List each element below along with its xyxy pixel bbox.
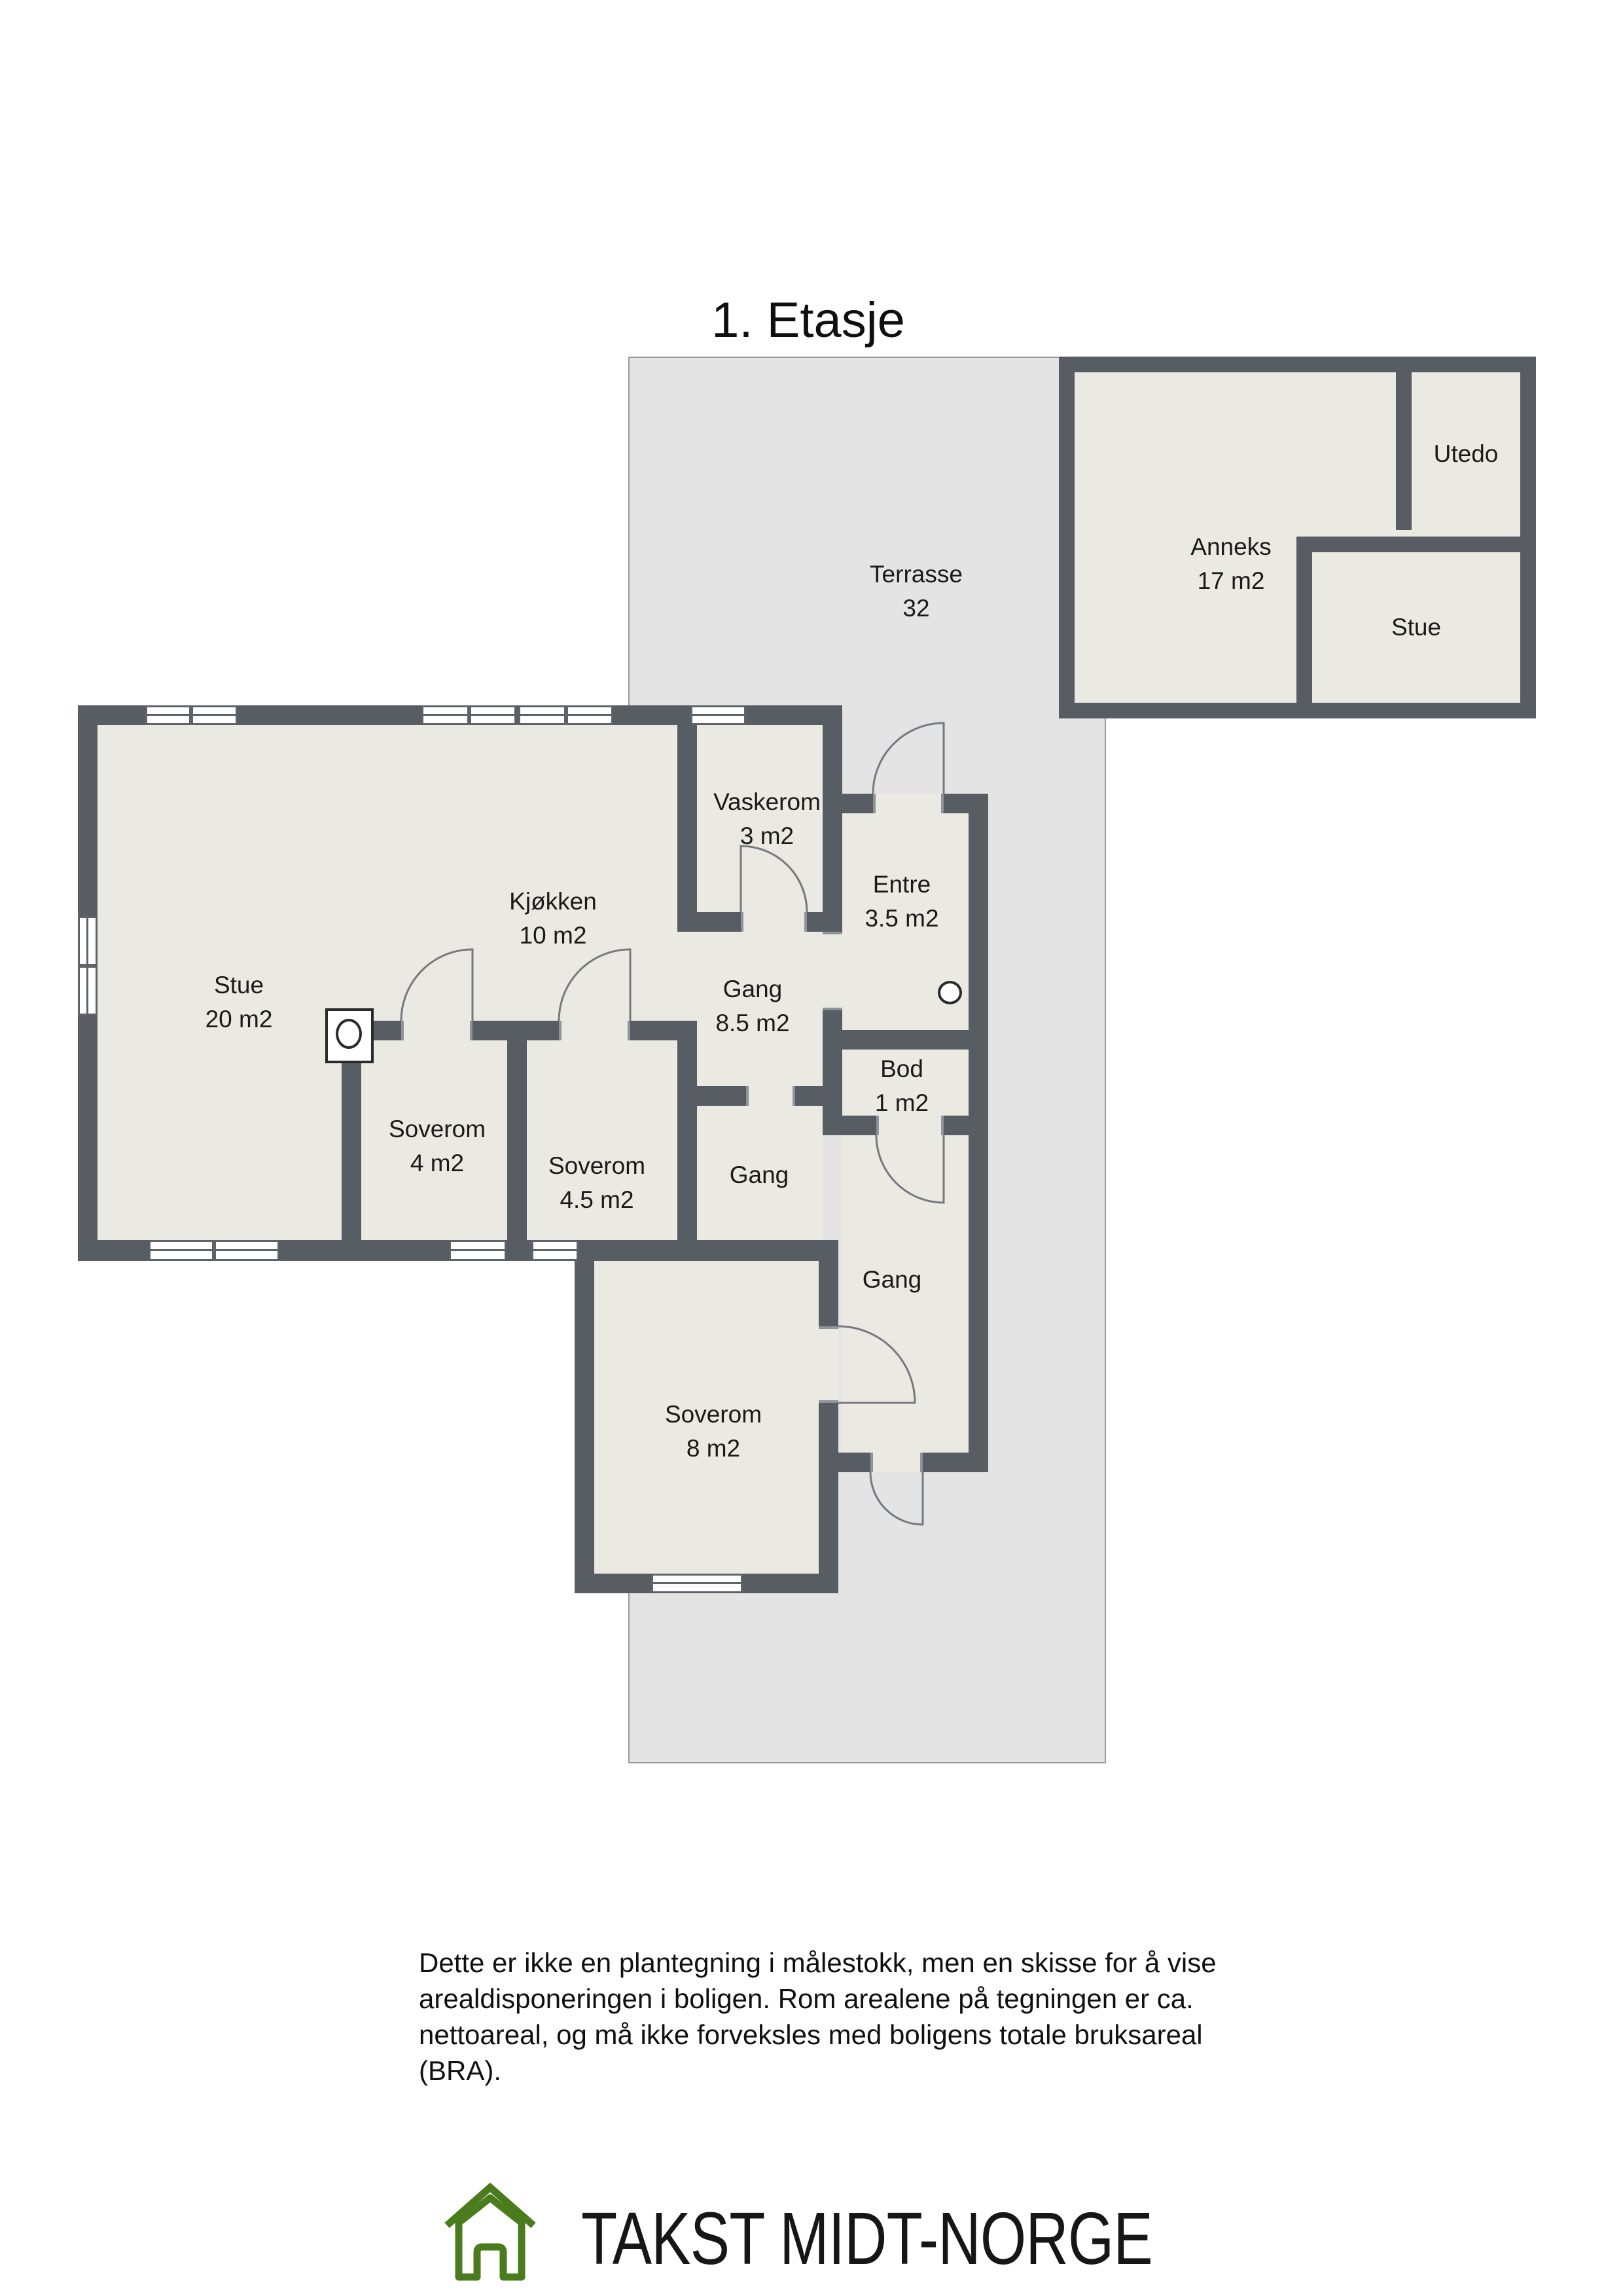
room-area: 4 m2 bbox=[389, 1146, 486, 1180]
room-area: 3 m2 bbox=[713, 819, 821, 853]
disclaimer-text: Dette er ikke en plantegning i målestokk… bbox=[419, 1945, 1217, 2089]
label-soverom8: Soverom 8 m2 bbox=[665, 1398, 762, 1466]
window-top-4 bbox=[690, 705, 746, 725]
label-gang-wing: Gang bbox=[863, 1263, 922, 1297]
label-terrasse: Terrasse 32 bbox=[870, 557, 963, 626]
room-name: Bod bbox=[875, 1052, 929, 1086]
room-name: Utedo bbox=[1434, 437, 1499, 471]
room-name: Anneks bbox=[1190, 530, 1271, 564]
room-area: 20 m2 bbox=[205, 1002, 273, 1036]
room-name: Gang bbox=[730, 1158, 789, 1192]
room-name: Vaskerom bbox=[713, 785, 821, 819]
label-soverom4: Soverom 4 m2 bbox=[389, 1112, 486, 1180]
room-area: 8 m2 bbox=[665, 1432, 762, 1466]
label-gang-mid: Gang bbox=[730, 1158, 789, 1192]
wall-soverom4-left bbox=[342, 1063, 361, 1240]
anneks-wall-utedo-divider bbox=[1396, 357, 1412, 530]
wall-soverom8-right bbox=[819, 1240, 838, 1593]
logo-text: TAKST MIDT-NORGE bbox=[581, 2199, 1152, 2278]
window-top-3a bbox=[518, 705, 566, 725]
wall-entre-bod-divider bbox=[842, 1030, 969, 1050]
opening-soverom8-door bbox=[819, 1326, 838, 1403]
window-top-2b bbox=[469, 705, 516, 725]
room-name: Kjøkken bbox=[509, 885, 597, 919]
window-top-1b bbox=[191, 705, 238, 725]
room-name: Soverom bbox=[548, 1149, 645, 1183]
disclaimer-line: (BRA). bbox=[419, 2053, 1217, 2089]
room-name: Terrasse bbox=[870, 557, 963, 592]
wall-soverom8-left bbox=[575, 1240, 594, 1593]
room-name: Stue bbox=[1391, 610, 1441, 645]
label-entre: Entre 3.5 m2 bbox=[865, 868, 938, 936]
label-vaskerom: Vaskerom 3 m2 bbox=[713, 785, 821, 853]
anneks-wall-left bbox=[1059, 357, 1075, 718]
window-bottom-1b bbox=[214, 1240, 279, 1261]
room-name: Gang bbox=[715, 972, 789, 1006]
anneks-wall-stue-left bbox=[1296, 537, 1312, 718]
label-utedo: Utedo bbox=[1434, 437, 1499, 471]
label-soverom45: Soverom 4.5 m2 bbox=[548, 1149, 645, 1217]
wall-main-right-upper bbox=[823, 705, 842, 932]
window-left-1a bbox=[78, 916, 98, 966]
label-bod: Bod 1 m2 bbox=[875, 1052, 929, 1120]
anneks-wall-stue-top bbox=[1296, 537, 1536, 552]
room-name: Soverom bbox=[389, 1112, 486, 1146]
window-bottom-3 bbox=[531, 1240, 579, 1261]
label-anneks: Anneks 17 m2 bbox=[1190, 530, 1271, 598]
anneks-wall-top bbox=[1059, 357, 1536, 372]
room-area: 17 m2 bbox=[1190, 564, 1271, 598]
room-area: 8.5 m2 bbox=[715, 1006, 789, 1040]
room-area: 3.5 m2 bbox=[865, 902, 938, 936]
disclaimer-line: Dette er ikke en plantegning i målestokk… bbox=[419, 1945, 1217, 1981]
floorplan-page: 1. Etasje bbox=[0, 0, 1623, 2296]
wall-vaskerom-left bbox=[677, 725, 697, 932]
window-top-3b bbox=[566, 705, 613, 725]
opening-terrace-exit-door bbox=[870, 1453, 923, 1472]
room-area: 1 m2 bbox=[875, 1086, 929, 1120]
fireplace-flue-icon bbox=[336, 1019, 362, 1049]
wall-soverom-divider bbox=[507, 1040, 527, 1240]
window-left-1b bbox=[78, 966, 98, 1016]
window-top-2a bbox=[421, 705, 469, 725]
window-top-1a bbox=[145, 705, 191, 725]
label-stue: Stue 20 m2 bbox=[205, 968, 273, 1036]
window-bottom-1a bbox=[149, 1240, 214, 1261]
room-area: 10 m2 bbox=[509, 919, 597, 953]
disclaimer-line: nettoareal, og må ikke forveksles med bo… bbox=[419, 2017, 1217, 2053]
window-bottom-2 bbox=[449, 1240, 507, 1261]
label-gang-main: Gang 8.5 m2 bbox=[715, 972, 789, 1040]
opening-entry-door bbox=[873, 794, 944, 813]
room-area: 4.5 m2 bbox=[548, 1183, 645, 1217]
wall-bod-left bbox=[823, 1010, 842, 1135]
opening-gang-entre bbox=[823, 932, 842, 1010]
room-name: Soverom bbox=[665, 1398, 762, 1432]
wall-gang-divider-right bbox=[795, 1086, 823, 1106]
room-name: Stue bbox=[205, 968, 273, 1002]
fireplace-icon bbox=[325, 1008, 374, 1063]
logo-house-icon bbox=[444, 2181, 537, 2281]
opening-gang-passage bbox=[746, 1086, 795, 1106]
room-area: 32 bbox=[870, 592, 963, 626]
wall-wing-right bbox=[969, 794, 988, 1472]
wall-gang-left bbox=[677, 1021, 697, 1240]
entre-fixture-icon bbox=[938, 981, 962, 1004]
room-name: Entre bbox=[865, 868, 938, 902]
opening-vaskerom-door bbox=[741, 912, 807, 932]
opening-soverom45-door bbox=[559, 1021, 630, 1040]
label-kjokken: Kjøkken 10 m2 bbox=[509, 885, 597, 953]
disclaimer-line: arealdisponeringen i boligen. Rom areale… bbox=[419, 1981, 1217, 2017]
room-name: Gang bbox=[863, 1263, 922, 1297]
wall-gang-divider-left bbox=[697, 1086, 746, 1106]
opening-soverom4-door bbox=[401, 1021, 473, 1040]
page-title: 1. Etasje bbox=[711, 293, 905, 348]
window-soverom8 bbox=[651, 1574, 743, 1593]
label-anneks-stue: Stue bbox=[1391, 610, 1441, 645]
